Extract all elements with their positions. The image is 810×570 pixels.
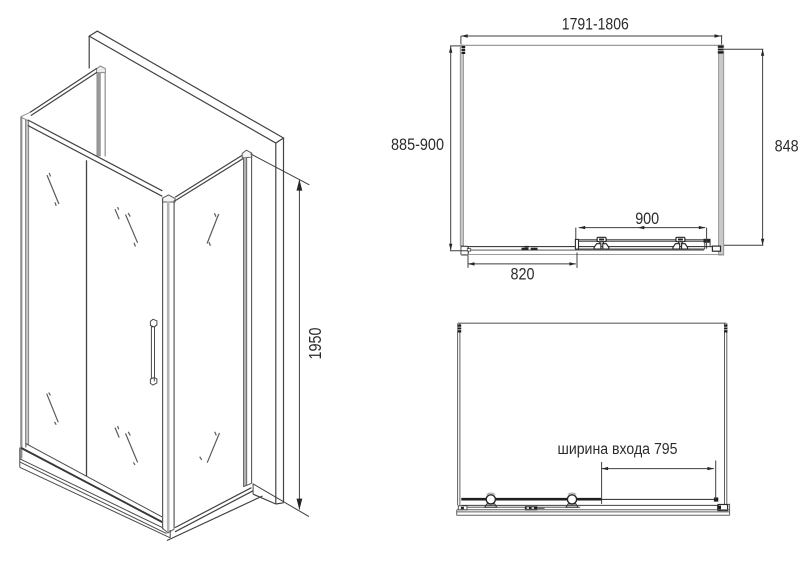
svg-text:848: 848 — [775, 136, 799, 155]
svg-text:820: 820 — [511, 265, 535, 284]
svg-text:900: 900 — [635, 209, 659, 228]
svg-text:ширина входа 795: ширина входа 795 — [558, 441, 678, 458]
svg-text:1791-1806: 1791-1806 — [562, 14, 629, 33]
svg-text:1950: 1950 — [305, 327, 325, 359]
svg-text:885-900: 885-900 — [391, 135, 444, 154]
